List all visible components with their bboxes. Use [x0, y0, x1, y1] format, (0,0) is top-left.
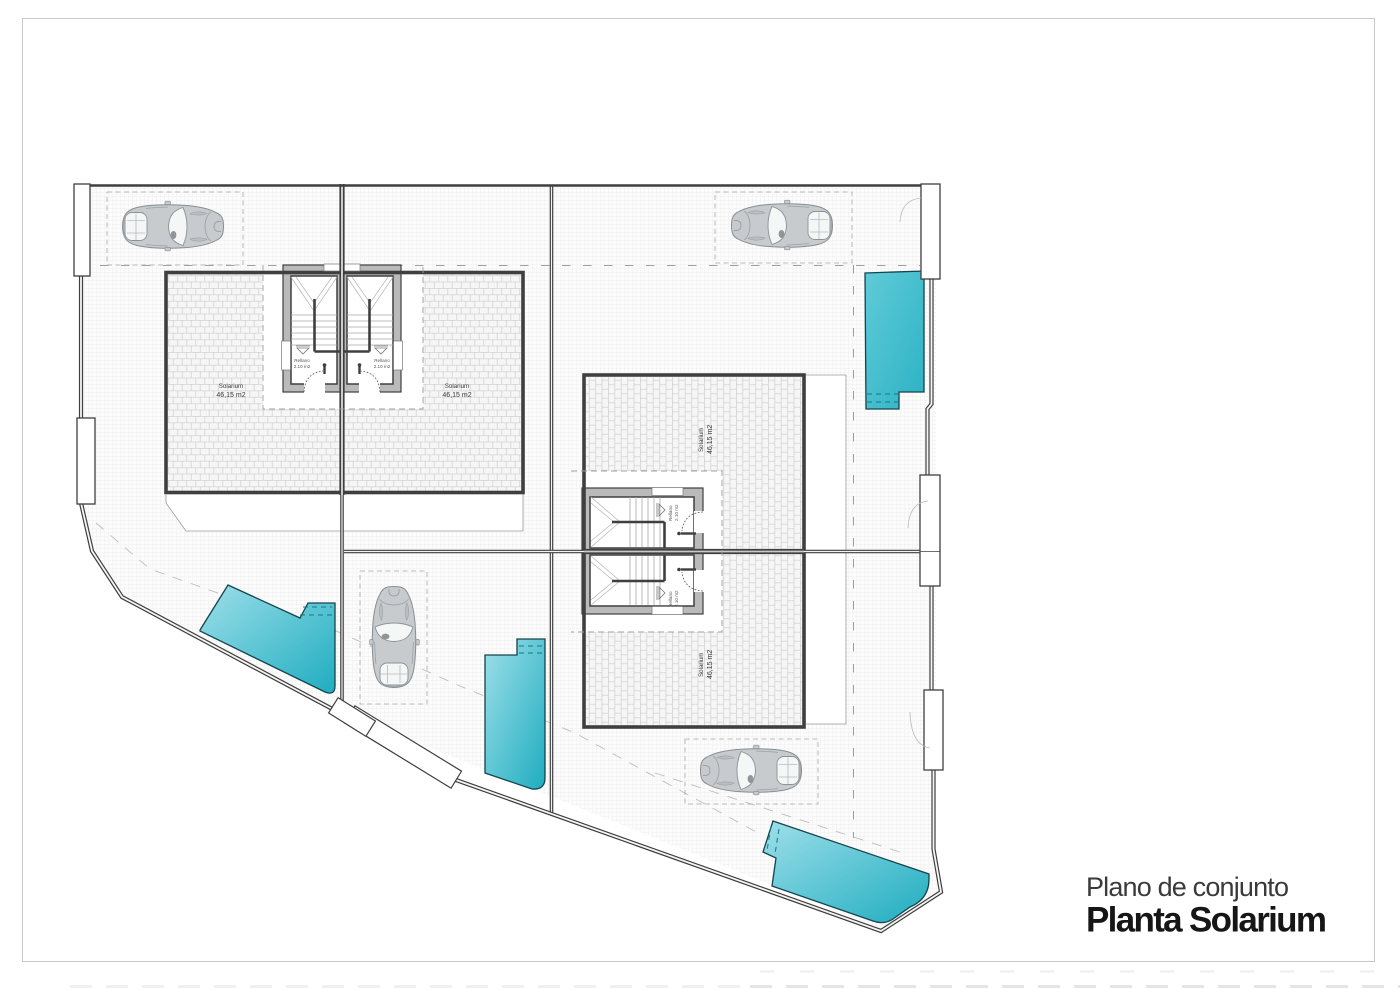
svg-text:2.10 m2: 2.10 m2	[294, 364, 311, 369]
svg-text:Plano de conjunto: Plano de conjunto	[1086, 872, 1289, 902]
svg-text:Planta Solarium: Planta Solarium	[1086, 901, 1327, 940]
svg-text:Rellano2.10 m2: Rellano2.10 m2	[668, 590, 679, 607]
svg-text:Rellano: Rellano	[294, 358, 310, 363]
svg-text:Solarium: Solarium	[219, 383, 243, 390]
svg-text:Solarium: Solarium	[445, 383, 469, 390]
svg-text:Rellano2.10 m2: Rellano2.10 m2	[668, 504, 679, 521]
svg-text:46,15 m2: 46,15 m2	[442, 392, 471, 399]
svg-text:Rellano: Rellano	[374, 358, 390, 363]
svg-text:2.10 m2: 2.10 m2	[374, 364, 391, 369]
svg-text:46,15 m2: 46,15 m2	[216, 392, 245, 399]
